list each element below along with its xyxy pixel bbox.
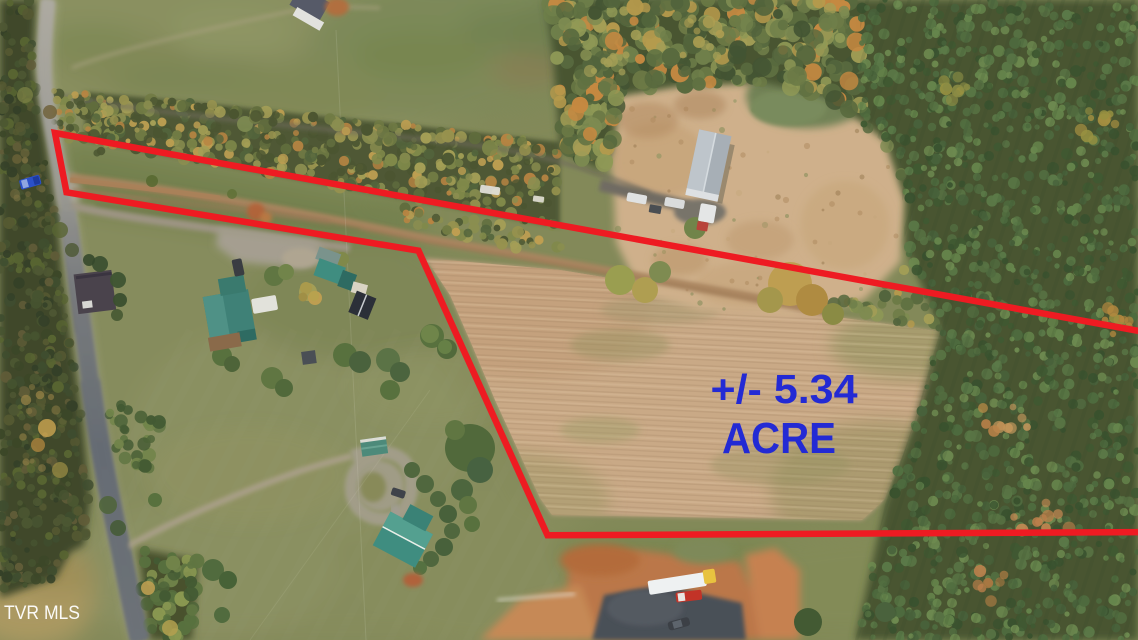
svg-text:TVR MLS: TVR MLS [4,602,80,624]
svg-text:ACRE: ACRE [722,414,836,463]
svg-text:+/- 5.34: +/- 5.34 [711,366,858,412]
